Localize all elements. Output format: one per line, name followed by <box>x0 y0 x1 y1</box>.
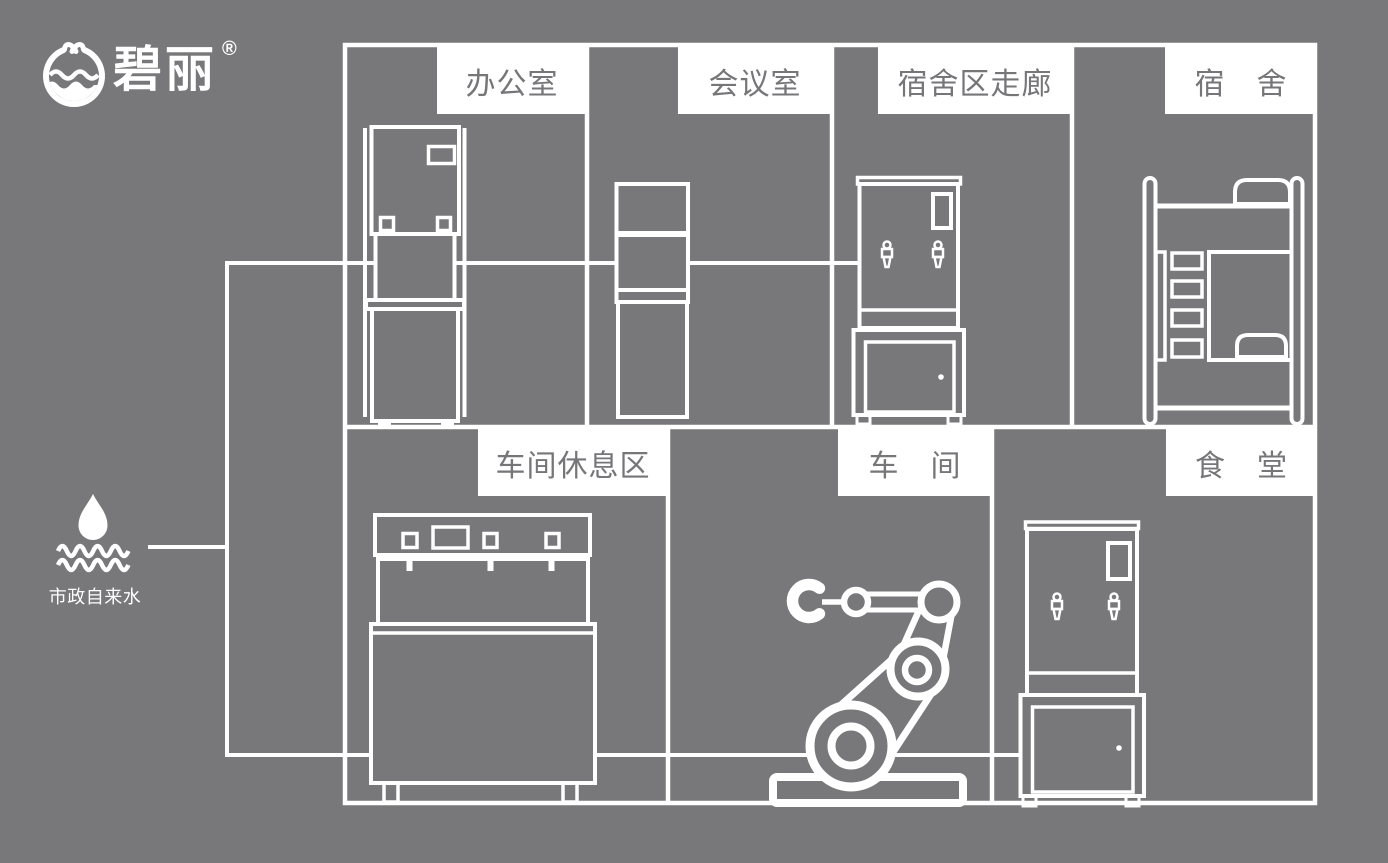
room-label-workshop: 车 间 <box>838 429 992 496</box>
waves-icon <box>58 560 128 570</box>
waves-icon <box>58 546 128 556</box>
rest-area-water-dispenser-icon <box>371 515 595 802</box>
brand-name: 碧丽 <box>113 46 217 95</box>
canteen-water-boiler-icon <box>1021 522 1145 806</box>
diagram-canvas: 办公室 会议室 宿舍区走廊 宿 舍 车间休息区 车 间 食 堂 碧丽 ® 市政自… <box>0 0 1388 863</box>
registered-trademark-symbol: ® <box>222 38 237 61</box>
gripper-claw-icon <box>792 585 819 618</box>
corridor-water-boiler-icon <box>854 178 965 425</box>
robot-arm-icon <box>773 584 963 803</box>
room-label-office: 办公室 <box>437 47 587 114</box>
room-label-corridor: 宿舍区走廊 <box>878 47 1072 114</box>
room-label-meeting: 会议室 <box>678 47 832 114</box>
room-label-canteen: 食 堂 <box>1166 429 1317 496</box>
office-water-dispenser-icon <box>365 127 465 426</box>
room-label-dorm: 宿 舍 <box>1165 47 1317 114</box>
water-source-icon <box>58 494 128 570</box>
water-drop-icon <box>79 494 108 540</box>
meeting-water-dispenser-icon <box>617 184 689 417</box>
bunk-bed-icon <box>1145 178 1303 424</box>
water-source-label: 市政自来水 <box>40 583 150 609</box>
room-label-rest-area: 车间休息区 <box>478 429 668 496</box>
brand-logo-icon <box>46 45 102 108</box>
